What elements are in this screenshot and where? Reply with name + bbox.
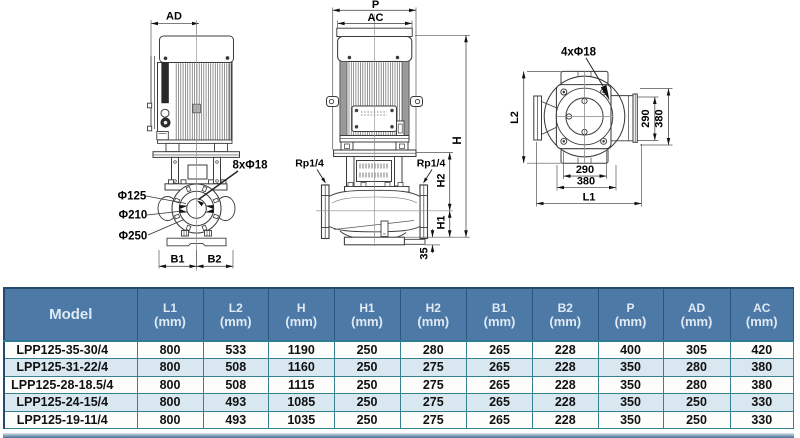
svg-text:L2: L2	[509, 111, 521, 124]
svg-text:H: H	[452, 136, 464, 144]
svg-text:290: 290	[640, 109, 652, 127]
svg-text:Rp1/4: Rp1/4	[417, 158, 446, 170]
svg-text:AD: AD	[166, 11, 182, 23]
svg-text:B1: B1	[170, 254, 184, 266]
svg-text:4xΦ18: 4xΦ18	[561, 47, 597, 59]
svg-text:35: 35	[419, 247, 431, 259]
svg-text:AC: AC	[368, 12, 384, 24]
svg-text:P: P	[372, 0, 379, 11]
svg-text:290: 290	[576, 164, 594, 176]
svg-text:8xΦ18: 8xΦ18	[232, 160, 268, 172]
svg-text:B2: B2	[207, 254, 221, 266]
svg-text:Φ250: Φ250	[119, 231, 148, 243]
svg-text:380: 380	[654, 109, 666, 127]
svg-text:H2: H2	[436, 173, 448, 187]
svg-text:Φ210: Φ210	[119, 210, 148, 222]
svg-text:380: 380	[577, 175, 595, 187]
svg-text:H1: H1	[436, 215, 448, 229]
svg-text:L1: L1	[583, 191, 596, 203]
svg-text:Rp1/4: Rp1/4	[295, 158, 324, 170]
svg-text:Φ125: Φ125	[118, 191, 147, 203]
